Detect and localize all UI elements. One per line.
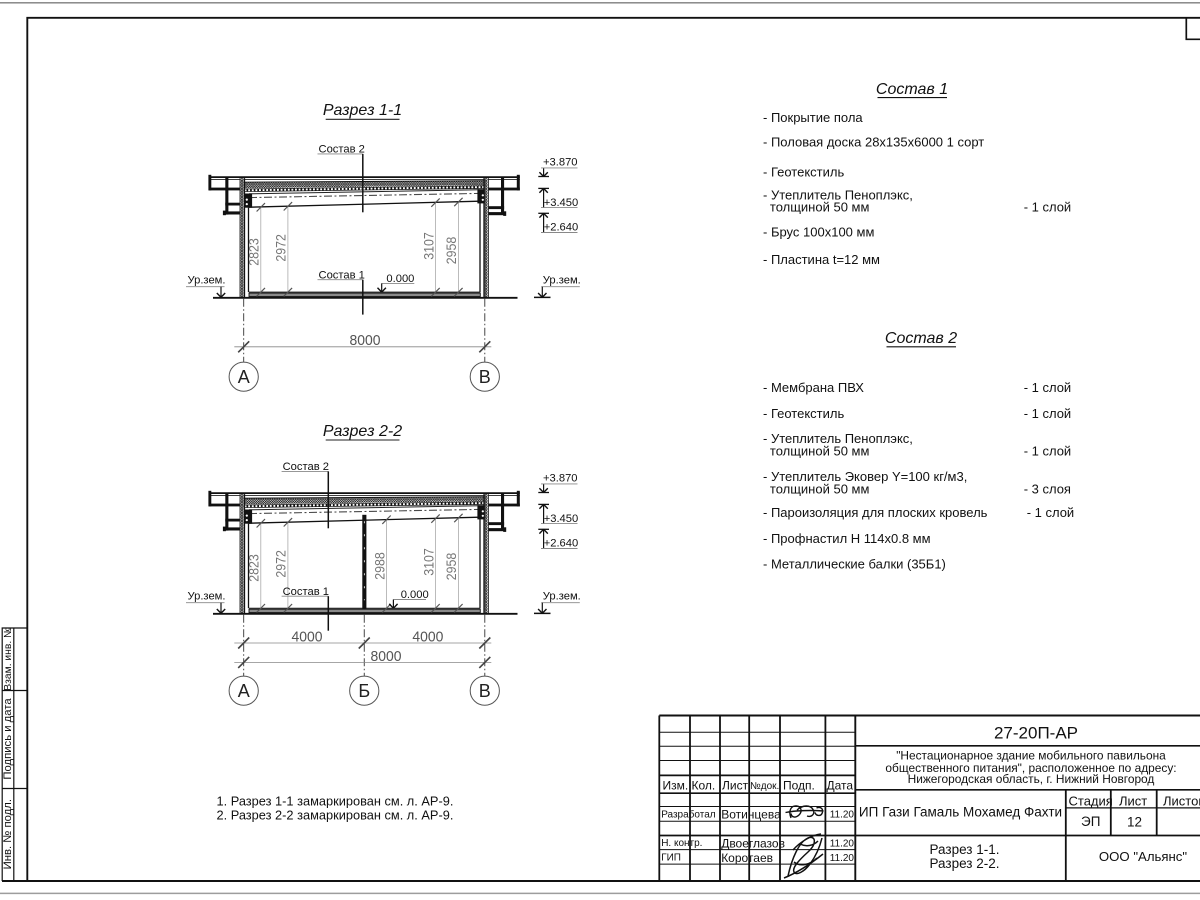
svg-text:Подпись и дата: Подпись и дата [2,698,14,780]
svg-text:+3.870: +3.870 [543,472,578,484]
svg-text:Вотинцева: Вотинцева [721,808,781,822]
svg-text:толщиной 50 мм: толщиной 50 мм [770,481,870,496]
svg-text:- 1 слой: - 1 слой [1024,406,1072,421]
svg-text:27-20П-АР: 27-20П-АР [994,724,1078,743]
svg-text:ИП Гази Гамаль Мохамед Фахти: ИП Гази Гамаль Мохамед Фахти [859,805,1062,820]
svg-text:Лист: Лист [722,779,749,793]
svg-text:- 1 слой: - 1 слой [1027,505,1075,520]
svg-text:Изм.: Изм. [663,778,689,792]
svg-text:4000: 4000 [412,628,443,645]
svg-text:Ур.зем.: Ур.зем. [188,274,226,286]
svg-text:Разработал: Разработал [661,809,716,821]
svg-text:- 1 слой: - 1 слой [1024,444,1072,459]
svg-text:ГИП: ГИП [661,853,681,864]
svg-text:- 3 слоя: - 3 слоя [1024,481,1071,496]
svg-text:Ур.зем.: Ур.зем. [543,590,581,602]
svg-text:2988: 2988 [372,552,387,580]
svg-text:№док.: №док. [750,781,779,792]
svg-text:толщиной 50 мм: толщиной 50 мм [770,199,870,214]
svg-text:+2.640: +2.640 [544,538,579,550]
svg-text:2. Разрез 2-2 замаркирован см.: 2. Разрез 2-2 замаркирован см. л. АР-9. [217,808,454,823]
svg-text:Б: Б [358,681,370,701]
svg-text:Кол.: Кол. [692,779,716,793]
svg-text:- Покрытие пола: - Покрытие пола [763,110,863,125]
svg-text:Подп.: Подп. [783,779,815,793]
svg-text:Н. контр.: Н. контр. [661,838,702,849]
svg-text:- Мембрана ПВХ: - Мембрана ПВХ [763,380,864,395]
svg-text:2972: 2972 [274,550,289,578]
svg-text:А: А [238,681,250,701]
svg-text:11.20: 11.20 [830,839,855,850]
svg-text:2823: 2823 [247,554,262,582]
svg-text:Состав 2: Состав 2 [885,330,957,347]
svg-text:Листов: Листов [1163,794,1200,809]
svg-text:Разрез 1-1.: Разрез 1-1. [929,842,999,857]
svg-text:+3.450: +3.450 [544,197,579,209]
svg-text:Стадия: Стадия [1069,794,1113,809]
svg-text:Нижегородская область, г. Нижн: Нижегородская область, г. Нижний Новгоро… [908,772,1155,786]
svg-text:+3.450: +3.450 [544,513,579,525]
svg-text:В: В [479,367,491,387]
svg-text:- Геотекстиль: - Геотекстиль [763,164,844,179]
svg-text:Ур.зем.: Ур.зем. [188,590,226,602]
svg-text:- Профнастил Н 114х0.8 мм: - Профнастил Н 114х0.8 мм [763,531,931,546]
svg-text:+3.870: +3.870 [543,156,578,168]
svg-text:2958: 2958 [444,552,459,580]
svg-text:12: 12 [1127,814,1142,829]
svg-text:толщиной 50 мм: толщиной 50 мм [770,444,870,459]
svg-text:Разрез 2-2: Разрез 2-2 [323,423,402,440]
svg-text:- Пароизоляция для плоских кро: - Пароизоляция для плоских кровель [763,505,988,520]
svg-text:- 1 слой: - 1 слой [1024,380,1072,395]
svg-text:Дата: Дата [827,779,854,793]
svg-text:1. Разрез 1-1 замаркирован см.: 1. Разрез 1-1 замаркирован см. л. АР-9. [217,794,454,809]
svg-text:- Геотекстиль: - Геотекстиль [763,406,844,421]
svg-text:2972: 2972 [274,234,289,262]
svg-text:Разрез 2-2.: Разрез 2-2. [929,856,999,871]
svg-text:- 1 слой: - 1 слой [1024,199,1072,214]
svg-text:- Металлические балки (35Б1): - Металлические балки (35Б1) [763,557,946,572]
svg-text:ЭП: ЭП [1081,814,1100,829]
svg-text:Двоеглазов: Двоеглазов [721,837,785,851]
svg-text:Взам. инв. №: Взам. инв. № [3,627,14,691]
svg-text:4000: 4000 [292,628,323,645]
svg-text:В: В [479,681,491,701]
svg-text:3107: 3107 [421,548,436,576]
svg-text:Коротаев: Коротаев [721,851,773,865]
svg-text:ООО "Альянс": ООО "Альянс" [1099,849,1187,864]
svg-text:2958: 2958 [444,236,459,264]
svg-text:2823: 2823 [247,238,262,266]
svg-text:+2.640: +2.640 [544,222,579,234]
svg-text:- Пластина t=12 мм: - Пластина t=12 мм [763,252,880,267]
svg-text:11.20: 11.20 [830,853,855,864]
svg-text:Инв. № подл.: Инв. № подл. [2,799,14,869]
svg-text:Состав 1: Состав 1 [876,81,948,98]
svg-text:Лист: Лист [1119,794,1147,809]
svg-text:11.20: 11.20 [830,810,855,821]
svg-text:А: А [238,367,250,387]
svg-text:Ур.зем.: Ур.зем. [543,274,581,286]
svg-text:3107: 3107 [421,232,436,260]
svg-text:- Половая доска 28х135х6000 1: - Половая доска 28х135х6000 1 сорт [763,134,984,149]
svg-text:- Брус 100х100 мм: - Брус 100х100 мм [763,224,874,239]
svg-text:Разрез 1-1: Разрез 1-1 [323,102,402,119]
svg-text:8000: 8000 [350,332,381,349]
svg-text:8000: 8000 [371,648,402,665]
